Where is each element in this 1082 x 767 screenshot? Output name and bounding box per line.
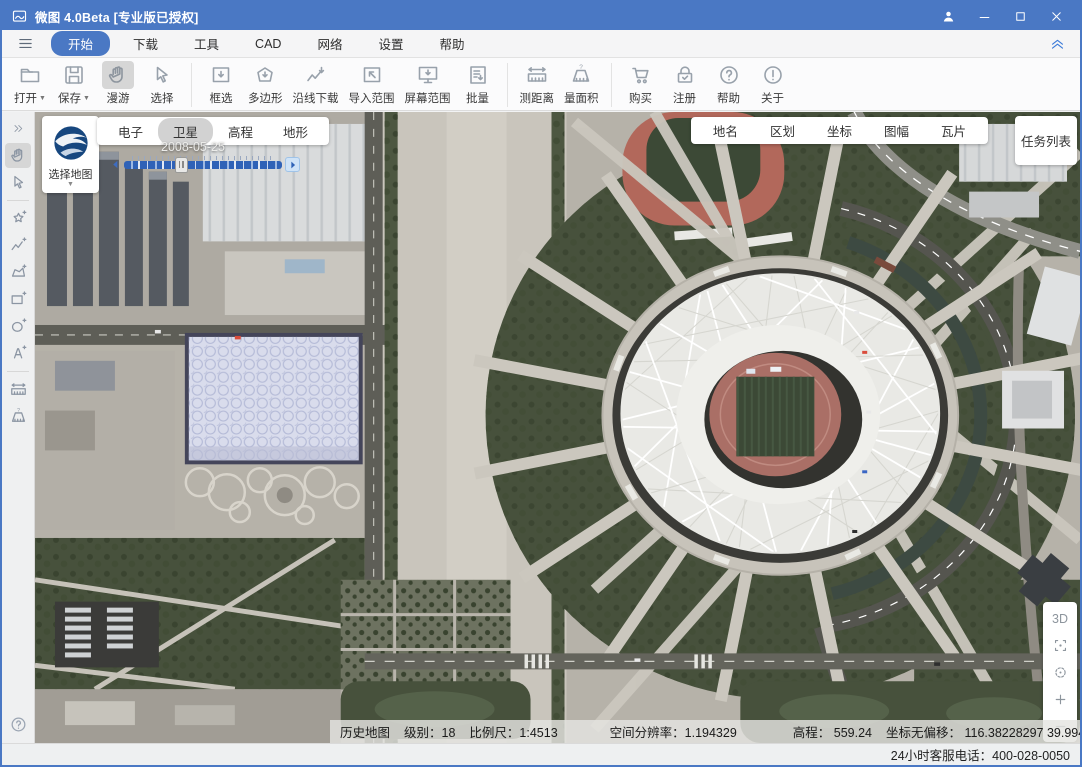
menu-item-cad[interactable]: CAD <box>242 34 294 54</box>
rect-select-button[interactable]: 框选 <box>199 61 243 106</box>
svg-text:?: ? <box>579 64 583 71</box>
screen-range-button[interactable]: 屏幕范围 <box>400 61 456 106</box>
pan-hand-icon <box>102 61 134 89</box>
status-zoom-level: 级别：18 <box>404 722 455 741</box>
timeline-slider-handle[interactable] <box>175 157 188 173</box>
timeline-slider[interactable] <box>124 161 282 169</box>
measure-area-icon: ? <box>565 61 597 89</box>
toggle-mapsheet-button[interactable]: 图幅 <box>868 117 925 144</box>
import-range-button[interactable]: 导入范围 <box>344 61 400 106</box>
close-button[interactable] <box>1044 5 1068 27</box>
select-cursor-icon <box>146 61 178 89</box>
draw-ellipse-tool[interactable] <box>5 314 31 339</box>
expand-right-icon[interactable] <box>5 116 31 141</box>
dropdown-caret-icon: ▼ <box>39 95 46 102</box>
maximize-button[interactable] <box>1008 5 1032 27</box>
draw-text-tool[interactable] <box>5 341 31 366</box>
sidebar-measure-area-tool[interactable]: ? <box>5 404 31 429</box>
about-button[interactable]: 关于 <box>751 61 795 106</box>
buy-button[interactable]: 购买 <box>619 61 663 106</box>
collapse-ribbon-icon[interactable] <box>1046 33 1068 55</box>
window-title: 微图 4.0Beta [专业版已授权] <box>35 7 199 26</box>
dropdown-caret-icon: ▼ <box>67 182 74 188</box>
app-logo-icon <box>10 7 28 25</box>
menu-item-tools[interactable]: 工具 <box>181 31 232 56</box>
save-icon <box>58 61 90 89</box>
satellite-imagery <box>35 112 1080 743</box>
import-range-icon <box>356 61 388 89</box>
help-icon <box>713 61 745 89</box>
sidebar-pan-tool[interactable] <box>5 143 31 168</box>
status-scale: 比例尺：1:4513 <box>469 722 557 741</box>
measure-distance-icon <box>521 61 553 89</box>
status-resolution: 空间分辨率：1.194329 <box>610 722 737 741</box>
locate-icon[interactable] <box>1048 661 1072 684</box>
save-label: 保存 <box>58 90 81 106</box>
satellite-map[interactable]: 选择地图 ▼ 电子 卫星 高程 地形 2008-05-25 <box>35 112 1080 743</box>
measure-distance-button[interactable]: 测距离 <box>515 61 560 106</box>
menu-item-settings[interactable]: 设置 <box>365 31 416 56</box>
hamburger-icon[interactable] <box>14 33 36 55</box>
timeline-date: 2008-05-25 <box>161 140 315 154</box>
status-history-map: 历史地图 <box>340 722 390 741</box>
sidebar-separator <box>7 200 29 201</box>
view-3d-button[interactable]: 3D <box>1048 607 1072 630</box>
open-label: 打开 <box>14 90 37 106</box>
pan-button[interactable]: 漫游 <box>96 61 140 106</box>
map-picker-label: 选择地图 <box>49 166 93 182</box>
batch-button[interactable]: 批量 <box>456 61 500 106</box>
polygon-download-icon <box>249 61 281 89</box>
select-button[interactable]: 选择 <box>140 61 184 106</box>
title-bar: 微图 4.0Beta [专业版已授权] <box>2 2 1080 30</box>
map-status-bar: 历史地图 级别：18 比例尺：1:4513 空间分辨率：1.194329 高程：… <box>330 720 1080 743</box>
folder-icon <box>14 61 46 89</box>
route-download-icon <box>300 61 332 89</box>
history-timeline: 2008-05-25 <box>109 140 315 172</box>
about-icon <box>757 61 789 89</box>
status-coordinates: 坐标无偏移： 116.38228297 39.9943220 <box>886 722 1080 741</box>
ribbon-separator <box>507 63 508 107</box>
save-button[interactable]: 保存▼ <box>52 61 96 106</box>
polygon-button[interactable]: 多边形 <box>243 61 288 106</box>
app-window: 微图 4.0Beta [专业版已授权] 开始 下载 工具 CAD 网络 设置 帮… <box>0 0 1082 767</box>
sidebar-help-icon[interactable] <box>5 712 31 737</box>
screen-range-icon <box>412 61 444 89</box>
toggle-placenames-button[interactable]: 地名 <box>697 117 754 144</box>
toggle-tiles-button[interactable]: 瓦片 <box>925 117 982 144</box>
timeline-ticks <box>132 156 272 160</box>
dropdown-caret-icon: ▼ <box>83 95 90 102</box>
register-lock-icon <box>669 61 701 89</box>
route-download-button[interactable]: 沿线下载 <box>288 61 344 106</box>
draw-rect-tool[interactable] <box>5 287 31 312</box>
app-footer: 24小时客服电话：400-028-0050 <box>2 743 1080 765</box>
svg-text:?: ? <box>17 408 20 414</box>
fullscreen-icon[interactable] <box>1048 634 1072 657</box>
register-button[interactable]: 注册 <box>663 61 707 106</box>
cart-icon <box>625 61 657 89</box>
window-controls <box>936 5 1072 27</box>
timeline-prev-button[interactable] <box>109 159 121 171</box>
main-content: ? <box>2 112 1080 743</box>
help-button[interactable]: 帮助 <box>707 61 751 106</box>
menu-item-help[interactable]: 帮助 <box>426 31 477 56</box>
zoom-in-button[interactable] <box>1048 688 1072 711</box>
overlay-toggle-bar: 地名 区划 坐标 图幅 瓦片 <box>691 117 988 144</box>
earth-logo-icon <box>50 122 92 164</box>
menu-bar: 开始 下载 工具 CAD 网络 设置 帮助 <box>2 30 1080 58</box>
minimize-button[interactable] <box>972 5 996 27</box>
ribbon-separator <box>191 63 192 107</box>
menu-item-start[interactable]: 开始 <box>51 31 110 56</box>
draw-polyline-tool[interactable] <box>5 233 31 258</box>
sidebar-separator <box>7 371 29 372</box>
sidebar-select-tool[interactable] <box>5 170 31 195</box>
sidebar-measure-distance-tool[interactable] <box>5 377 31 402</box>
map-picker-button[interactable]: 选择地图 ▼ <box>42 116 99 193</box>
menu-item-network[interactable]: 网络 <box>304 31 355 56</box>
ribbon-separator <box>611 63 612 107</box>
tool-sidebar: ? <box>2 112 35 743</box>
timeline-next-button[interactable] <box>285 157 300 172</box>
rect-download-icon <box>205 61 237 89</box>
batch-icon <box>462 61 494 89</box>
toggle-coordinates-button[interactable]: 坐标 <box>811 117 868 144</box>
menu-item-download[interactable]: 下载 <box>120 31 171 56</box>
status-elevation: 高程： 559.24 <box>793 722 872 741</box>
measure-area-button[interactable]: ? 量面积 <box>559 61 604 106</box>
service-phone: 24小时客服电话：400-028-0050 <box>891 745 1070 764</box>
ribbon-toolbar: 打开▼ 保存▼ 漫游 选择 框选 多边形 沿线下载 导入范围 <box>2 58 1080 111</box>
toggle-districts-button[interactable]: 区划 <box>754 117 811 144</box>
draw-polygon-tool[interactable] <box>5 260 31 285</box>
open-button[interactable]: 打开▼ <box>8 61 52 106</box>
draw-freeform-tool[interactable] <box>5 206 31 231</box>
task-list-button[interactable]: 任务列表 <box>1015 116 1077 165</box>
user-icon[interactable] <box>936 5 960 27</box>
